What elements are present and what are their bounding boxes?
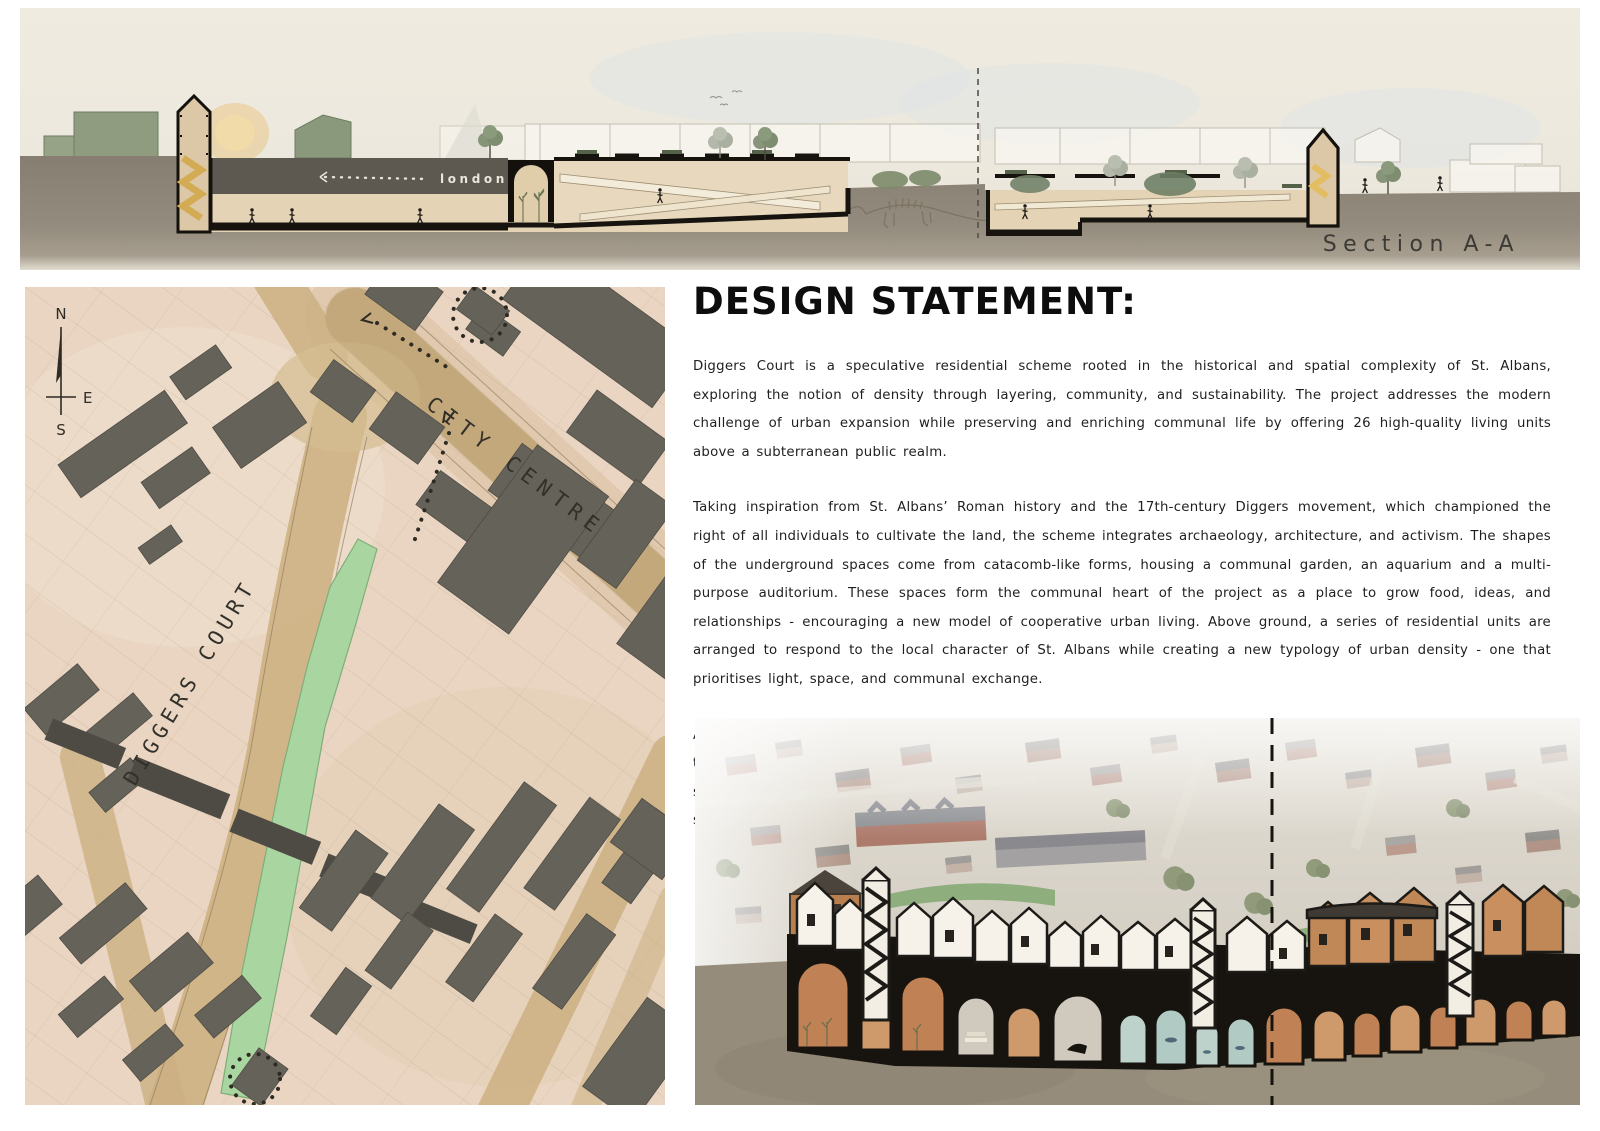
left-tower	[178, 96, 210, 232]
right-tower	[1308, 130, 1338, 226]
site-plan-map: N E S CITY CENTRE DIGGERS COURT	[25, 287, 665, 1105]
aerial-photomontage	[695, 718, 1580, 1105]
statement-paragraph-2: Taking inspiration from St. Albans’ Roma…	[693, 494, 1551, 694]
page-title: DESIGN STATEMENT:	[693, 280, 1551, 323]
svg-text:S: S	[56, 421, 66, 439]
section-label: Section A-A	[1323, 232, 1520, 257]
svg-text:E: E	[83, 389, 92, 407]
section-drawing: london road	[20, 8, 1580, 270]
presentation-board: london road	[0, 0, 1600, 1131]
statement-paragraph-1: Diggers Court is a speculative residenti…	[693, 353, 1551, 467]
svg-text:N: N	[55, 305, 66, 323]
